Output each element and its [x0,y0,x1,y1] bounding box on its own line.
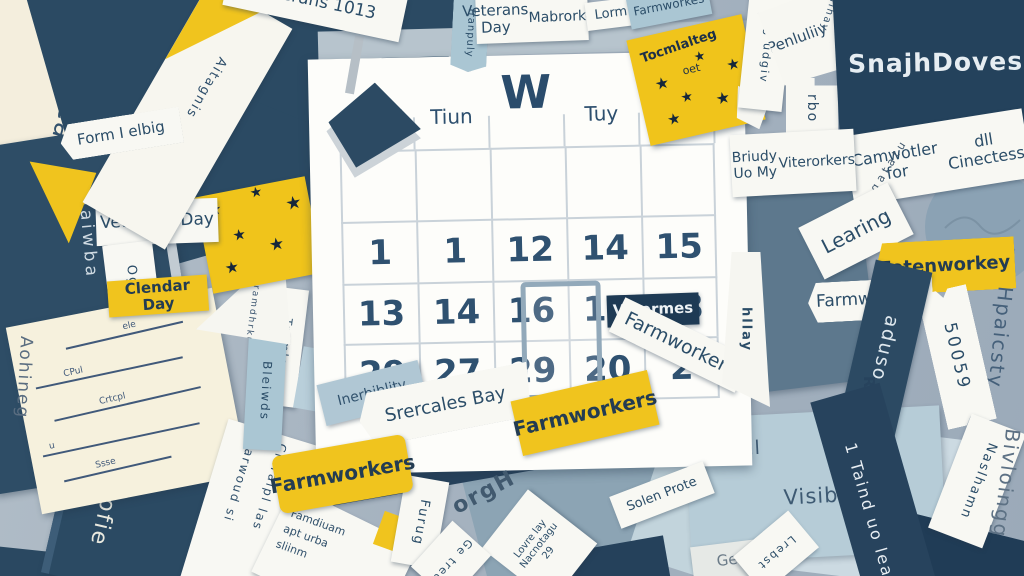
notepad-line: CPul [36,355,183,389]
notepad-word: Ssse [94,456,116,470]
calendar-cell: 12 [491,217,567,281]
aohineg-label: Aohineg [8,336,36,492]
star-icon: ★ [284,193,303,214]
notepad-line: ele [66,320,184,350]
star-icon: ★ [666,111,682,129]
hllay-label: hllay [739,307,754,352]
calendar-cell [565,145,641,218]
calendar-cell [490,146,566,219]
star-icon: ★ [725,56,741,74]
lrebst-label: Lrebst [754,532,798,571]
bleiwds-strip: Bleiwds [243,331,287,451]
star-icon: ★ [653,74,671,93]
calendar-cell: 1 [341,220,417,284]
clendar-day-tag: Clendar Day [107,275,209,318]
penluliiy-label: Penluliiy [765,19,830,57]
veterans-day-mabrorkes-tag: Veterans Day Mabrorkes [475,0,589,44]
camwotler-line2: dll Cinectess [940,125,1024,175]
notepad-word: Crtcpl [98,391,126,407]
briudy-line1: Briudy Uo My [730,148,779,183]
notepad-word: ele [122,320,137,333]
calendar-cell: 14 [417,281,493,343]
calendar-cell [415,148,491,221]
calendar-header: Tiun [414,104,489,130]
getred-label: Ge tred [428,536,474,576]
star-icon: ★ [223,259,240,277]
star-icon: ★ [231,227,247,244]
notepad-line: Crtcpl [54,385,201,422]
calendar-cell: 1 [416,219,492,283]
notepad-line: Ssse [64,455,172,483]
snajhdoves-label: SnajhDoves [848,46,1024,78]
calendar-cell: 15 [641,214,717,278]
aohineg-text-wrap: Aohineg [12,336,32,491]
star-icon: ★ [268,235,286,255]
vdm-line1: Veterans Day [462,1,529,38]
briudy-line2: Viterorkers [778,152,855,172]
ticket-number-label: 50059 [939,321,974,393]
bivloingg-wrap: Bivloingg [992,428,1016,576]
grid-tick [488,116,491,148]
star-icon: ★ [679,89,694,105]
calendar-cell: 13 [342,282,418,344]
calendar-header: W [488,64,564,120]
collage-canvas: Ivealoy Avlaiwba Leal Visiblility Selius… [0,0,1024,576]
furug-label: Furug [409,498,432,547]
aduso-label: aduso [867,314,904,385]
star-icon: ★ [714,89,732,108]
calendar-cell: 14 [566,216,642,280]
notepad-word: CPul [63,365,84,379]
briudy-tag: Briudy Uo My Viterorkers [729,129,856,197]
notepad-word: u [48,441,56,452]
bleiwds-label: Bleiwds [257,361,274,422]
rbo-label: rbo [804,94,820,123]
calendar-header: Tuy [564,101,639,127]
star-icon: ★ [249,185,264,201]
star-icon: ★ [693,49,707,64]
notepad-line: u [43,421,200,457]
calendar-cell [640,143,716,216]
